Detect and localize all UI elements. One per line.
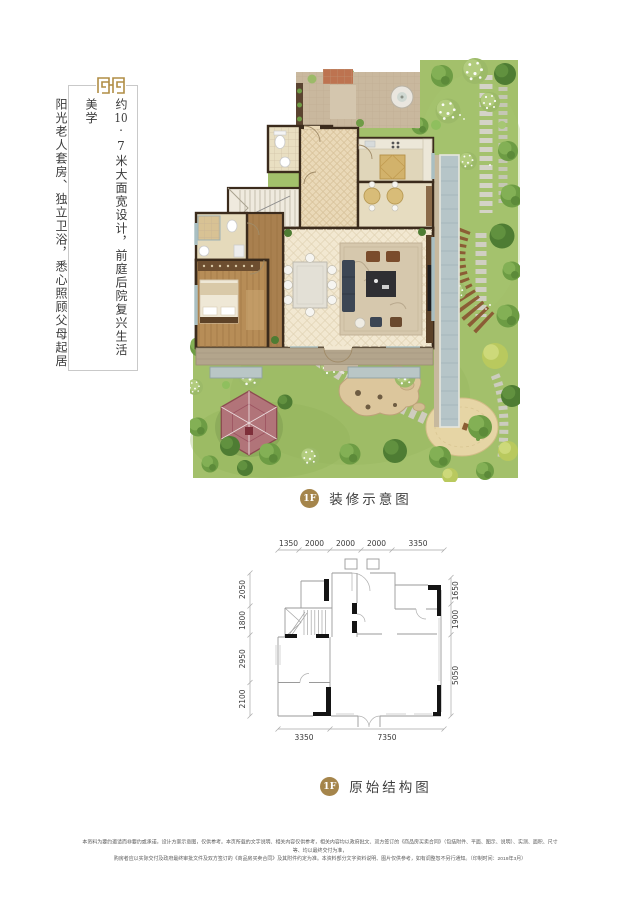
dim-top-5: 3350 (408, 539, 427, 548)
dim-bottom-1: 3350 (294, 733, 313, 742)
dim-left-2: 1800 (238, 611, 247, 630)
swimming-pool (434, 155, 459, 427)
disclaimer: 本资料为要约邀请而非要约或承诺，设计方案示意图，仅供参考。本页所载的文字说明、相… (78, 838, 562, 863)
dim-left-1: 2050 (238, 580, 247, 599)
dim-right-2: 1900 (451, 610, 460, 629)
coffee-table (366, 271, 396, 297)
dim-right-3: 5050 (451, 666, 460, 685)
fret-pattern-icon (96, 74, 126, 96)
bedroom (196, 260, 268, 348)
tv (428, 265, 432, 311)
slogan-line-2: 阳光老人套房、独立卫浴，悉心照顾父母起居 (46, 98, 76, 368)
bathroom-2 (196, 213, 247, 260)
decorated-plan-caption: 1F 装修示意图 (206, 488, 506, 508)
structure-windows (276, 618, 439, 714)
entry-hall (300, 126, 358, 230)
toilet (227, 220, 237, 232)
floor-badge-1f: 1F (320, 777, 339, 796)
dim-top-1: 1350 (279, 539, 298, 548)
dimension-labels: 1350 2000 2000 2000 3350 2050 1800 2950 … (238, 539, 460, 742)
floor-badge-1f: 1F (300, 489, 319, 508)
structure-walls-thin (278, 559, 441, 727)
front-courtyard (296, 69, 420, 128)
kitchen (358, 138, 433, 182)
toilet (275, 136, 285, 149)
dim-right-1: 1650 (451, 581, 460, 600)
breakfast-room (358, 182, 433, 231)
sink (199, 246, 209, 256)
structure-walls-black (285, 579, 441, 716)
dim-left-3: 2950 (238, 649, 247, 668)
dim-top-2: 2000 (305, 539, 324, 548)
structure-stairs (285, 608, 326, 637)
structure-door-arcs (300, 573, 426, 727)
kitchen-island (380, 155, 405, 179)
living-dining-room (283, 228, 433, 348)
dim-top-3: 2000 (336, 539, 355, 548)
sink (280, 157, 290, 167)
bed (200, 280, 238, 323)
structural-floor-plan: 1350 2000 2000 2000 3350 2050 1800 2950 … (230, 533, 510, 778)
structure-plan-caption-label: 原始结构图 (349, 776, 432, 796)
dim-bottom-2: 7350 (377, 733, 396, 742)
dim-top-4: 2000 (367, 539, 386, 548)
disclaimer-line-1: 本资料为要约邀请而非要约或承诺，设计方案示意图，仅供参考。本页所载的文字说明、相… (78, 838, 562, 855)
dim-left-4: 2100 (238, 689, 247, 708)
slogan-line-1: 约10·7米大面宽设计，前庭后院复兴生活美学 (76, 98, 136, 368)
decorated-plan-caption-label: 装修示意图 (329, 488, 412, 508)
house (194, 126, 434, 378)
decorated-floor-plan (190, 55, 520, 482)
structure-plan-caption: 1F 原始结构图 (226, 776, 526, 796)
brochure-page: 约10·7米大面宽设计，前庭后院复兴生活美学 阳光老人套房、独立卫浴，悉心照顾父… (0, 0, 640, 920)
chinese-fret-ornament-icon (96, 74, 126, 96)
slogan-vertical-text: 约10·7米大面宽设计，前庭后院复兴生活美学 阳光老人套房、独立卫浴，悉心照顾父… (70, 98, 136, 368)
fountain (391, 86, 413, 108)
disclaimer-line-2: 购房者应以实际交付及政府最终审批文件及双方签订的《商品房买卖合同》及其附件约定为… (78, 855, 562, 863)
